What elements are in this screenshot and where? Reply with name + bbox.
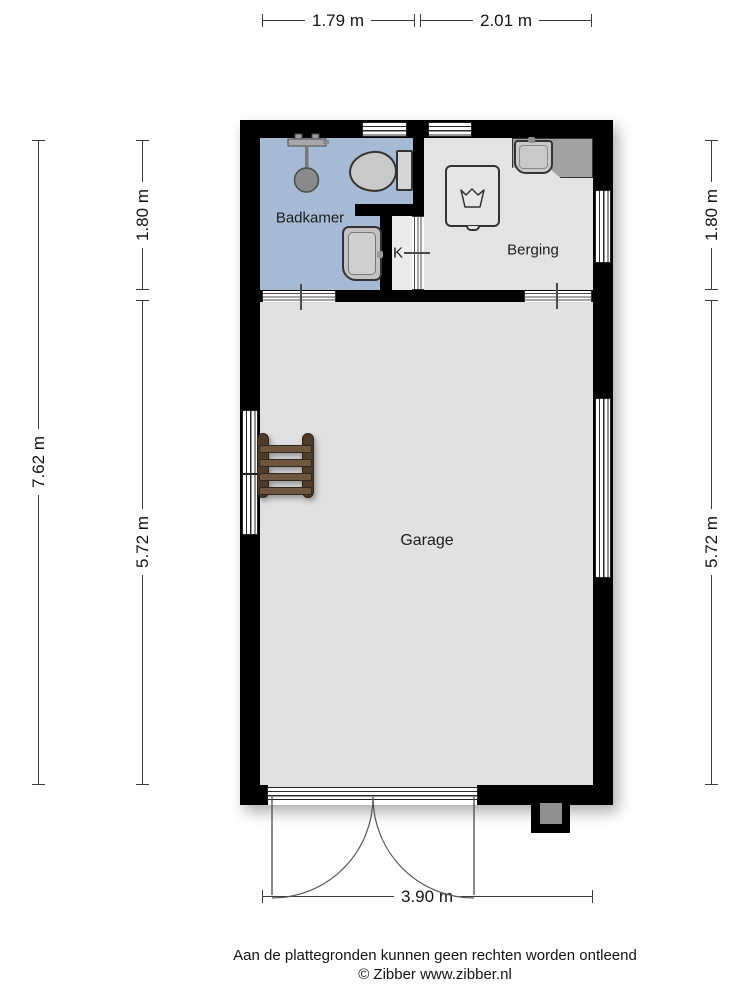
dim-tick: [136, 784, 149, 785]
dim-tick: [136, 140, 149, 141]
window-top-bathroom: [362, 122, 407, 137]
ladder-rung: [259, 487, 312, 495]
shower-icon: [285, 133, 329, 195]
window-right-storage: [595, 190, 611, 263]
dim-label-left-upper: 1.80 m: [133, 182, 153, 248]
ladder: [257, 433, 314, 498]
window-right-garage: [595, 398, 611, 578]
window-left-garage-upper: [242, 410, 258, 474]
bathroom-door-tick: [300, 284, 302, 310]
ladder-rung: [259, 459, 312, 467]
dim-label-top-left: 1.79 m: [305, 11, 371, 31]
window-top-storage: [428, 122, 472, 137]
dim-tick: [414, 14, 415, 27]
closet-door-tick: [404, 252, 430, 254]
dim-tick: [591, 14, 592, 27]
counter-sink: [514, 140, 553, 174]
dim-label-left-lower: 5.72 m: [133, 509, 153, 575]
washing-machine: [445, 165, 500, 227]
dim-tick: [592, 890, 593, 903]
interior-wall-bathroom-storage: [413, 120, 424, 216]
dim-tick: [420, 14, 421, 27]
footer: Aan de plattegronden kunnen geen rechten…: [115, 946, 750, 984]
counter-faucet: [528, 137, 535, 143]
dim-tick: [705, 289, 718, 290]
dim-tick: [262, 14, 263, 27]
toilet-tank: [396, 150, 413, 191]
ladder-rung: [259, 473, 312, 481]
washbasin-faucet: [377, 251, 383, 258]
dim-tick: [32, 784, 45, 785]
bathroom-door: [262, 291, 336, 302]
laundry-tub-icon: [458, 186, 488, 210]
garage-door-swing-arcs: [260, 790, 490, 902]
dim-tick: [32, 140, 45, 141]
storage-door-tick: [556, 283, 558, 309]
counter-sink-inner: [519, 145, 548, 169]
washbasin-inner: [348, 232, 376, 275]
footer-disclaimer: Aan de plattegronden kunnen geen rechten…: [115, 946, 750, 965]
washbasin: [342, 226, 382, 281]
dim-label-right-upper: 1.80 m: [702, 182, 722, 248]
ladder-rung: [259, 445, 312, 453]
dim-label-right-lower: 5.72 m: [702, 509, 722, 575]
dim-label-left-outer: 7.62 m: [29, 429, 49, 495]
dim-label-top-right: 2.01 m: [473, 11, 539, 31]
dim-tick: [705, 784, 718, 785]
window-left-garage-lower: [242, 474, 258, 535]
chimney-flue: [540, 803, 562, 824]
floorplan-canvas: 1.79 m 2.01 m 7.62 m 1.80 m 5.72 m 1.80 …: [0, 0, 750, 1000]
storage-door: [524, 291, 592, 302]
dim-tick: [705, 140, 718, 141]
room-label-garage: Garage: [400, 532, 453, 550]
dim-tick: [705, 300, 718, 301]
dim-tick: [136, 300, 149, 301]
room-label-storage: Berging: [507, 242, 559, 259]
room-label-bathroom: Badkamer: [276, 210, 344, 227]
dim-tick: [136, 289, 149, 290]
room-label-closet: K: [393, 245, 403, 262]
footer-copyright: © Zibber www.zibber.nl: [115, 965, 750, 984]
